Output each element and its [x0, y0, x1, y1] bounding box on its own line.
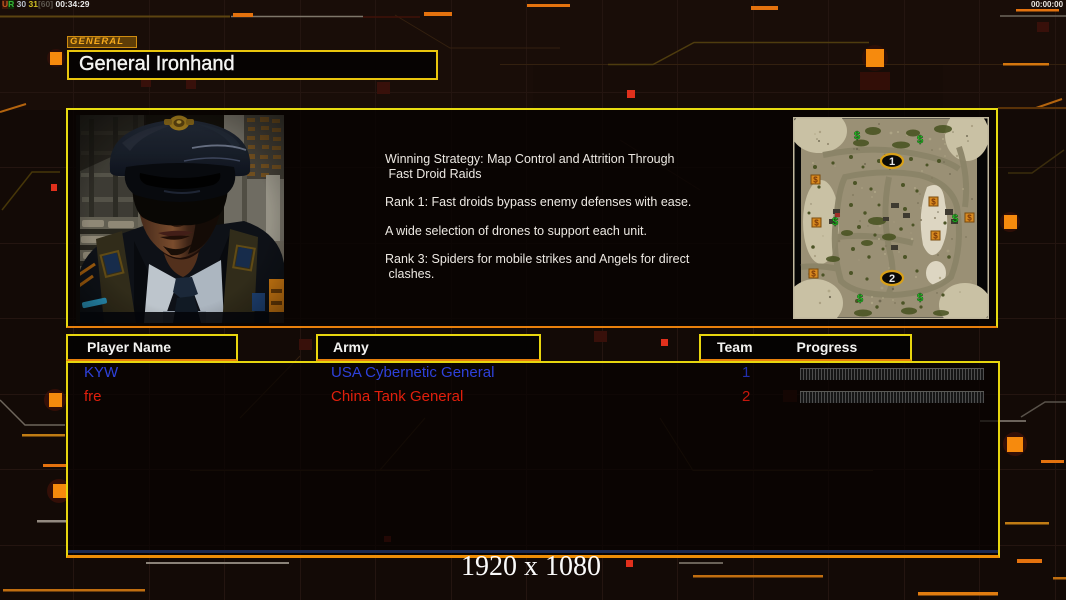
svg-text:$: $ [967, 214, 972, 223]
svg-text:$: $ [857, 293, 863, 305]
svg-text:$: $ [917, 134, 923, 146]
svg-text:$: $ [811, 270, 816, 279]
svg-text:$: $ [814, 219, 819, 228]
svg-text:$: $ [917, 292, 923, 304]
svg-text:$: $ [813, 176, 818, 185]
svg-text:$: $ [832, 216, 838, 228]
svg-text:$: $ [931, 198, 936, 207]
svg-text:$: $ [933, 232, 938, 241]
svg-text:2: 2 [889, 273, 895, 285]
svg-text:$: $ [854, 130, 860, 142]
svg-text:1: 1 [889, 156, 895, 168]
svg-text:$: $ [952, 213, 958, 225]
